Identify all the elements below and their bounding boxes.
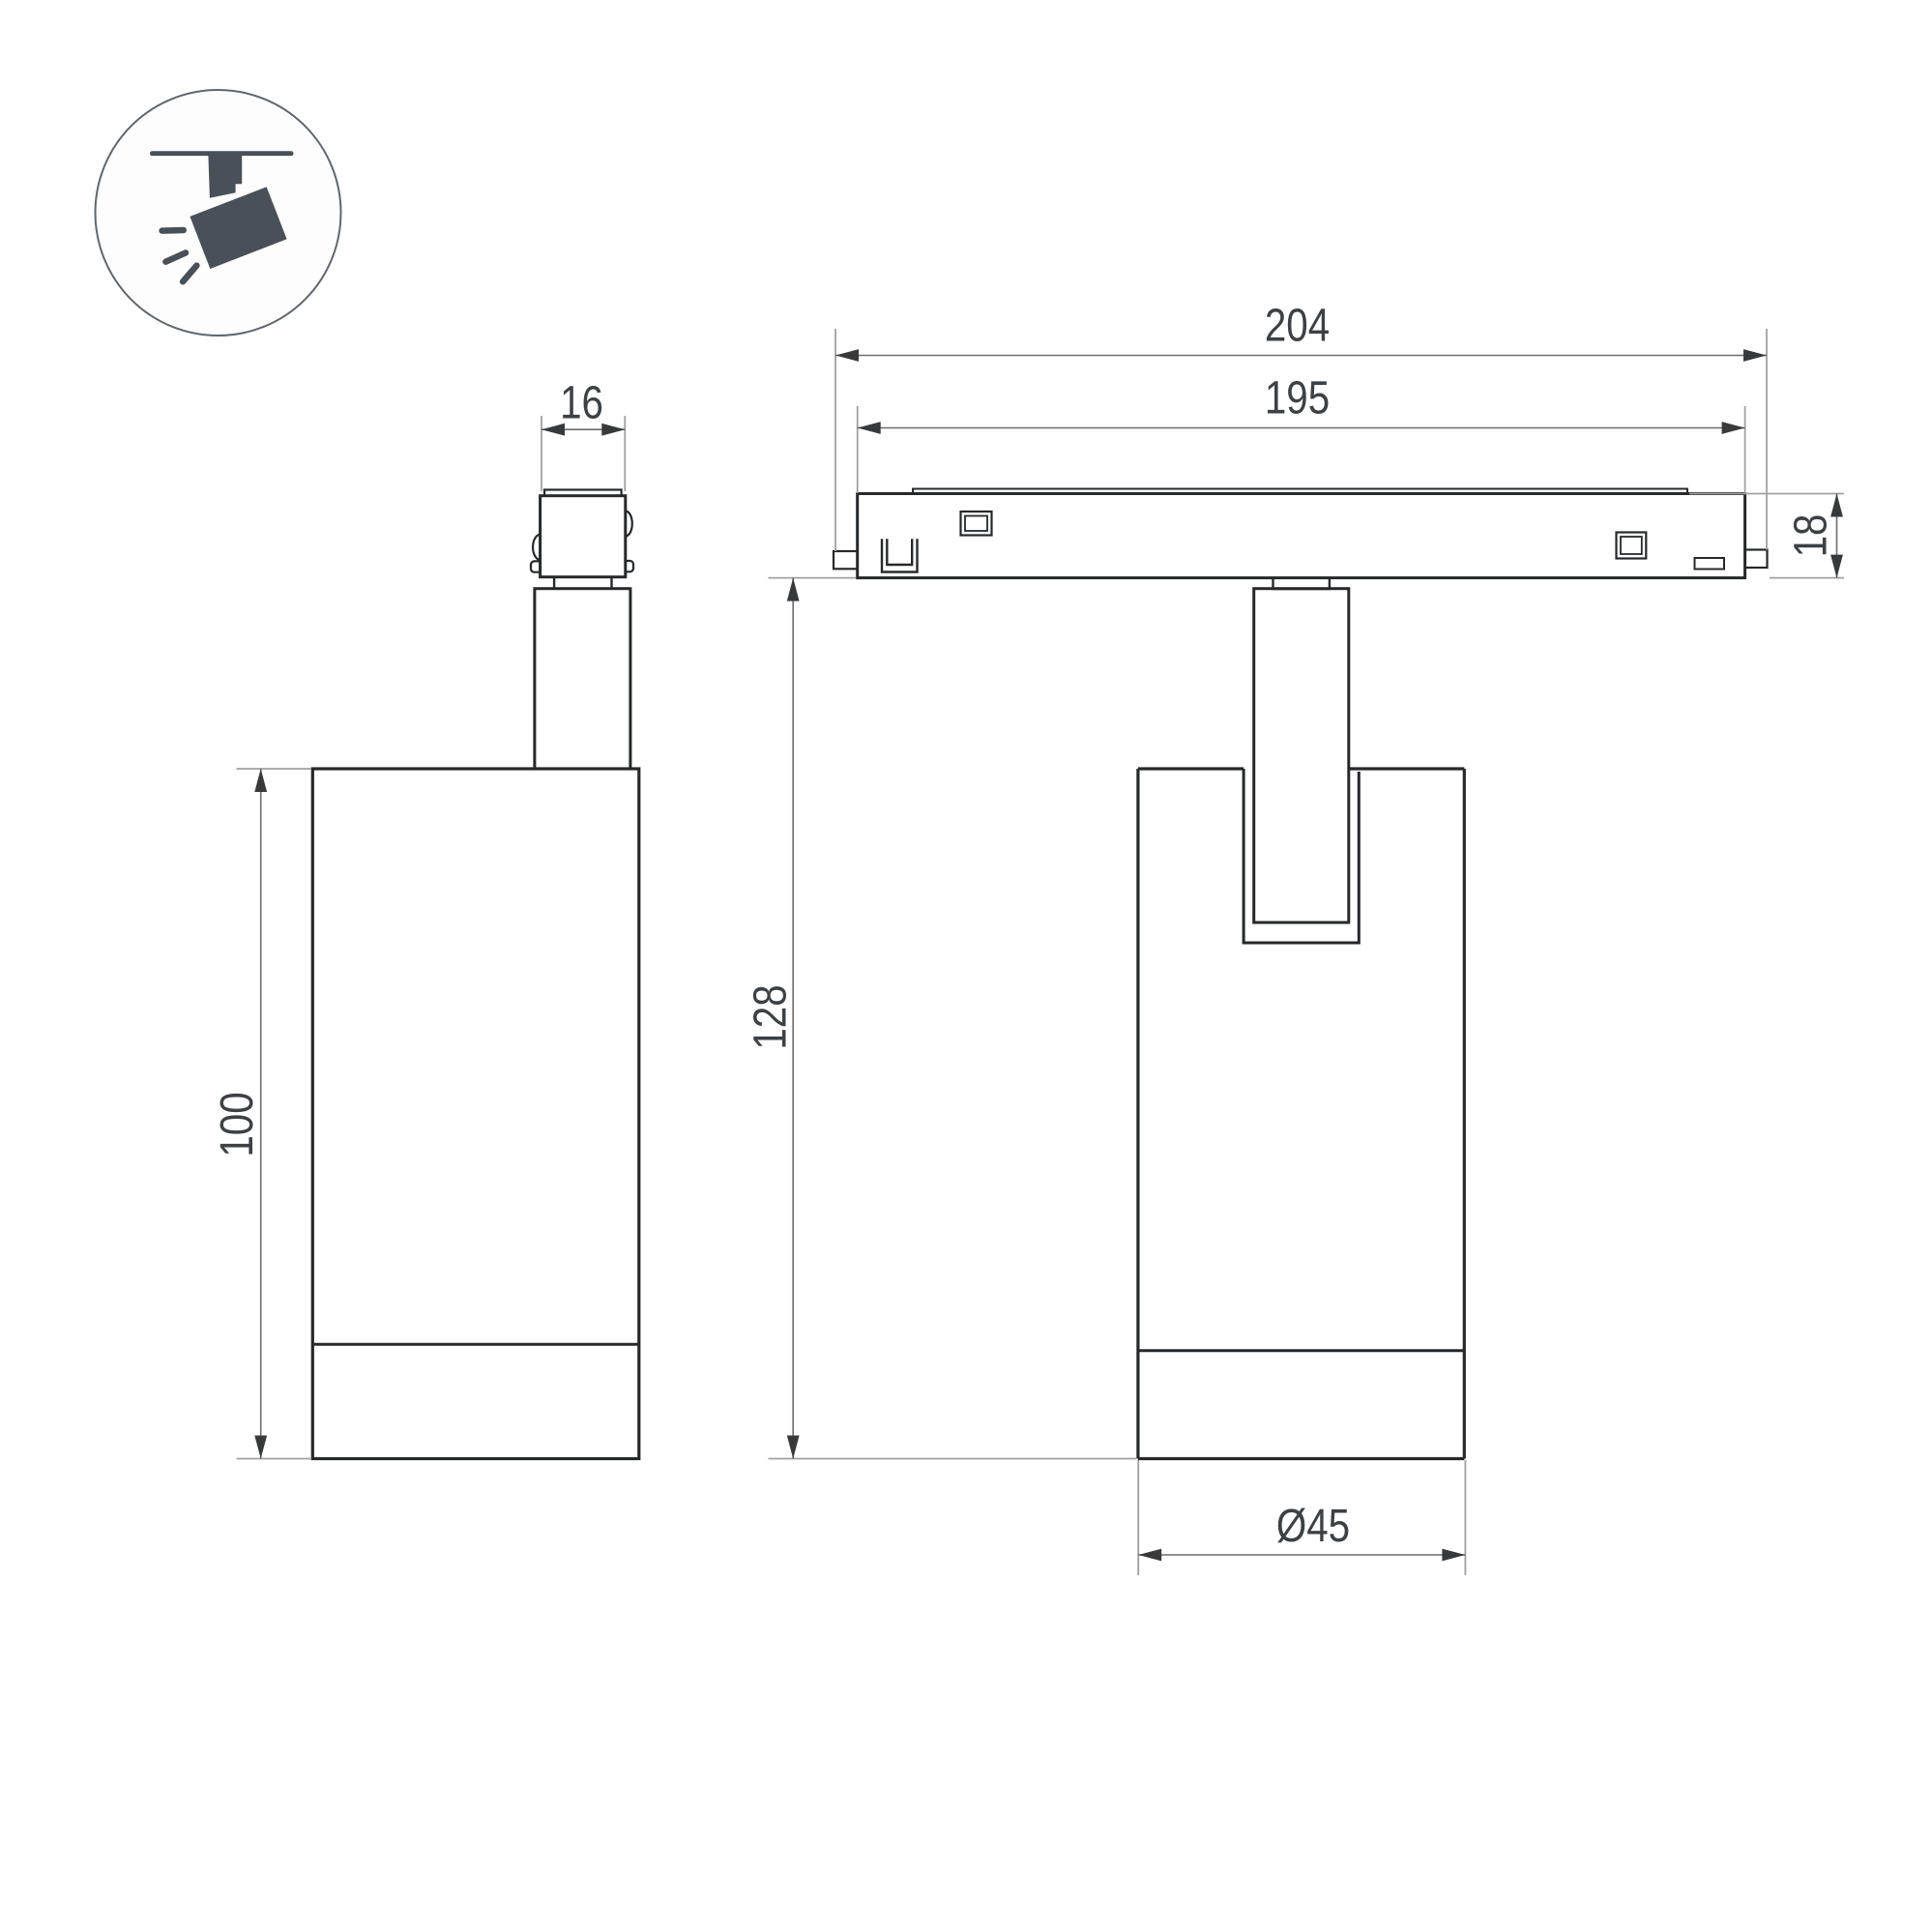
svg-text:16: 16 bbox=[560, 377, 603, 428]
svg-text:Ø45: Ø45 bbox=[1276, 1501, 1350, 1552]
svg-text:195: 195 bbox=[1265, 372, 1330, 424]
svg-text:128: 128 bbox=[745, 984, 796, 1049]
svg-text:100: 100 bbox=[212, 1092, 263, 1156]
svg-text:204: 204 bbox=[1265, 300, 1330, 351]
svg-text:18: 18 bbox=[1785, 514, 1836, 558]
